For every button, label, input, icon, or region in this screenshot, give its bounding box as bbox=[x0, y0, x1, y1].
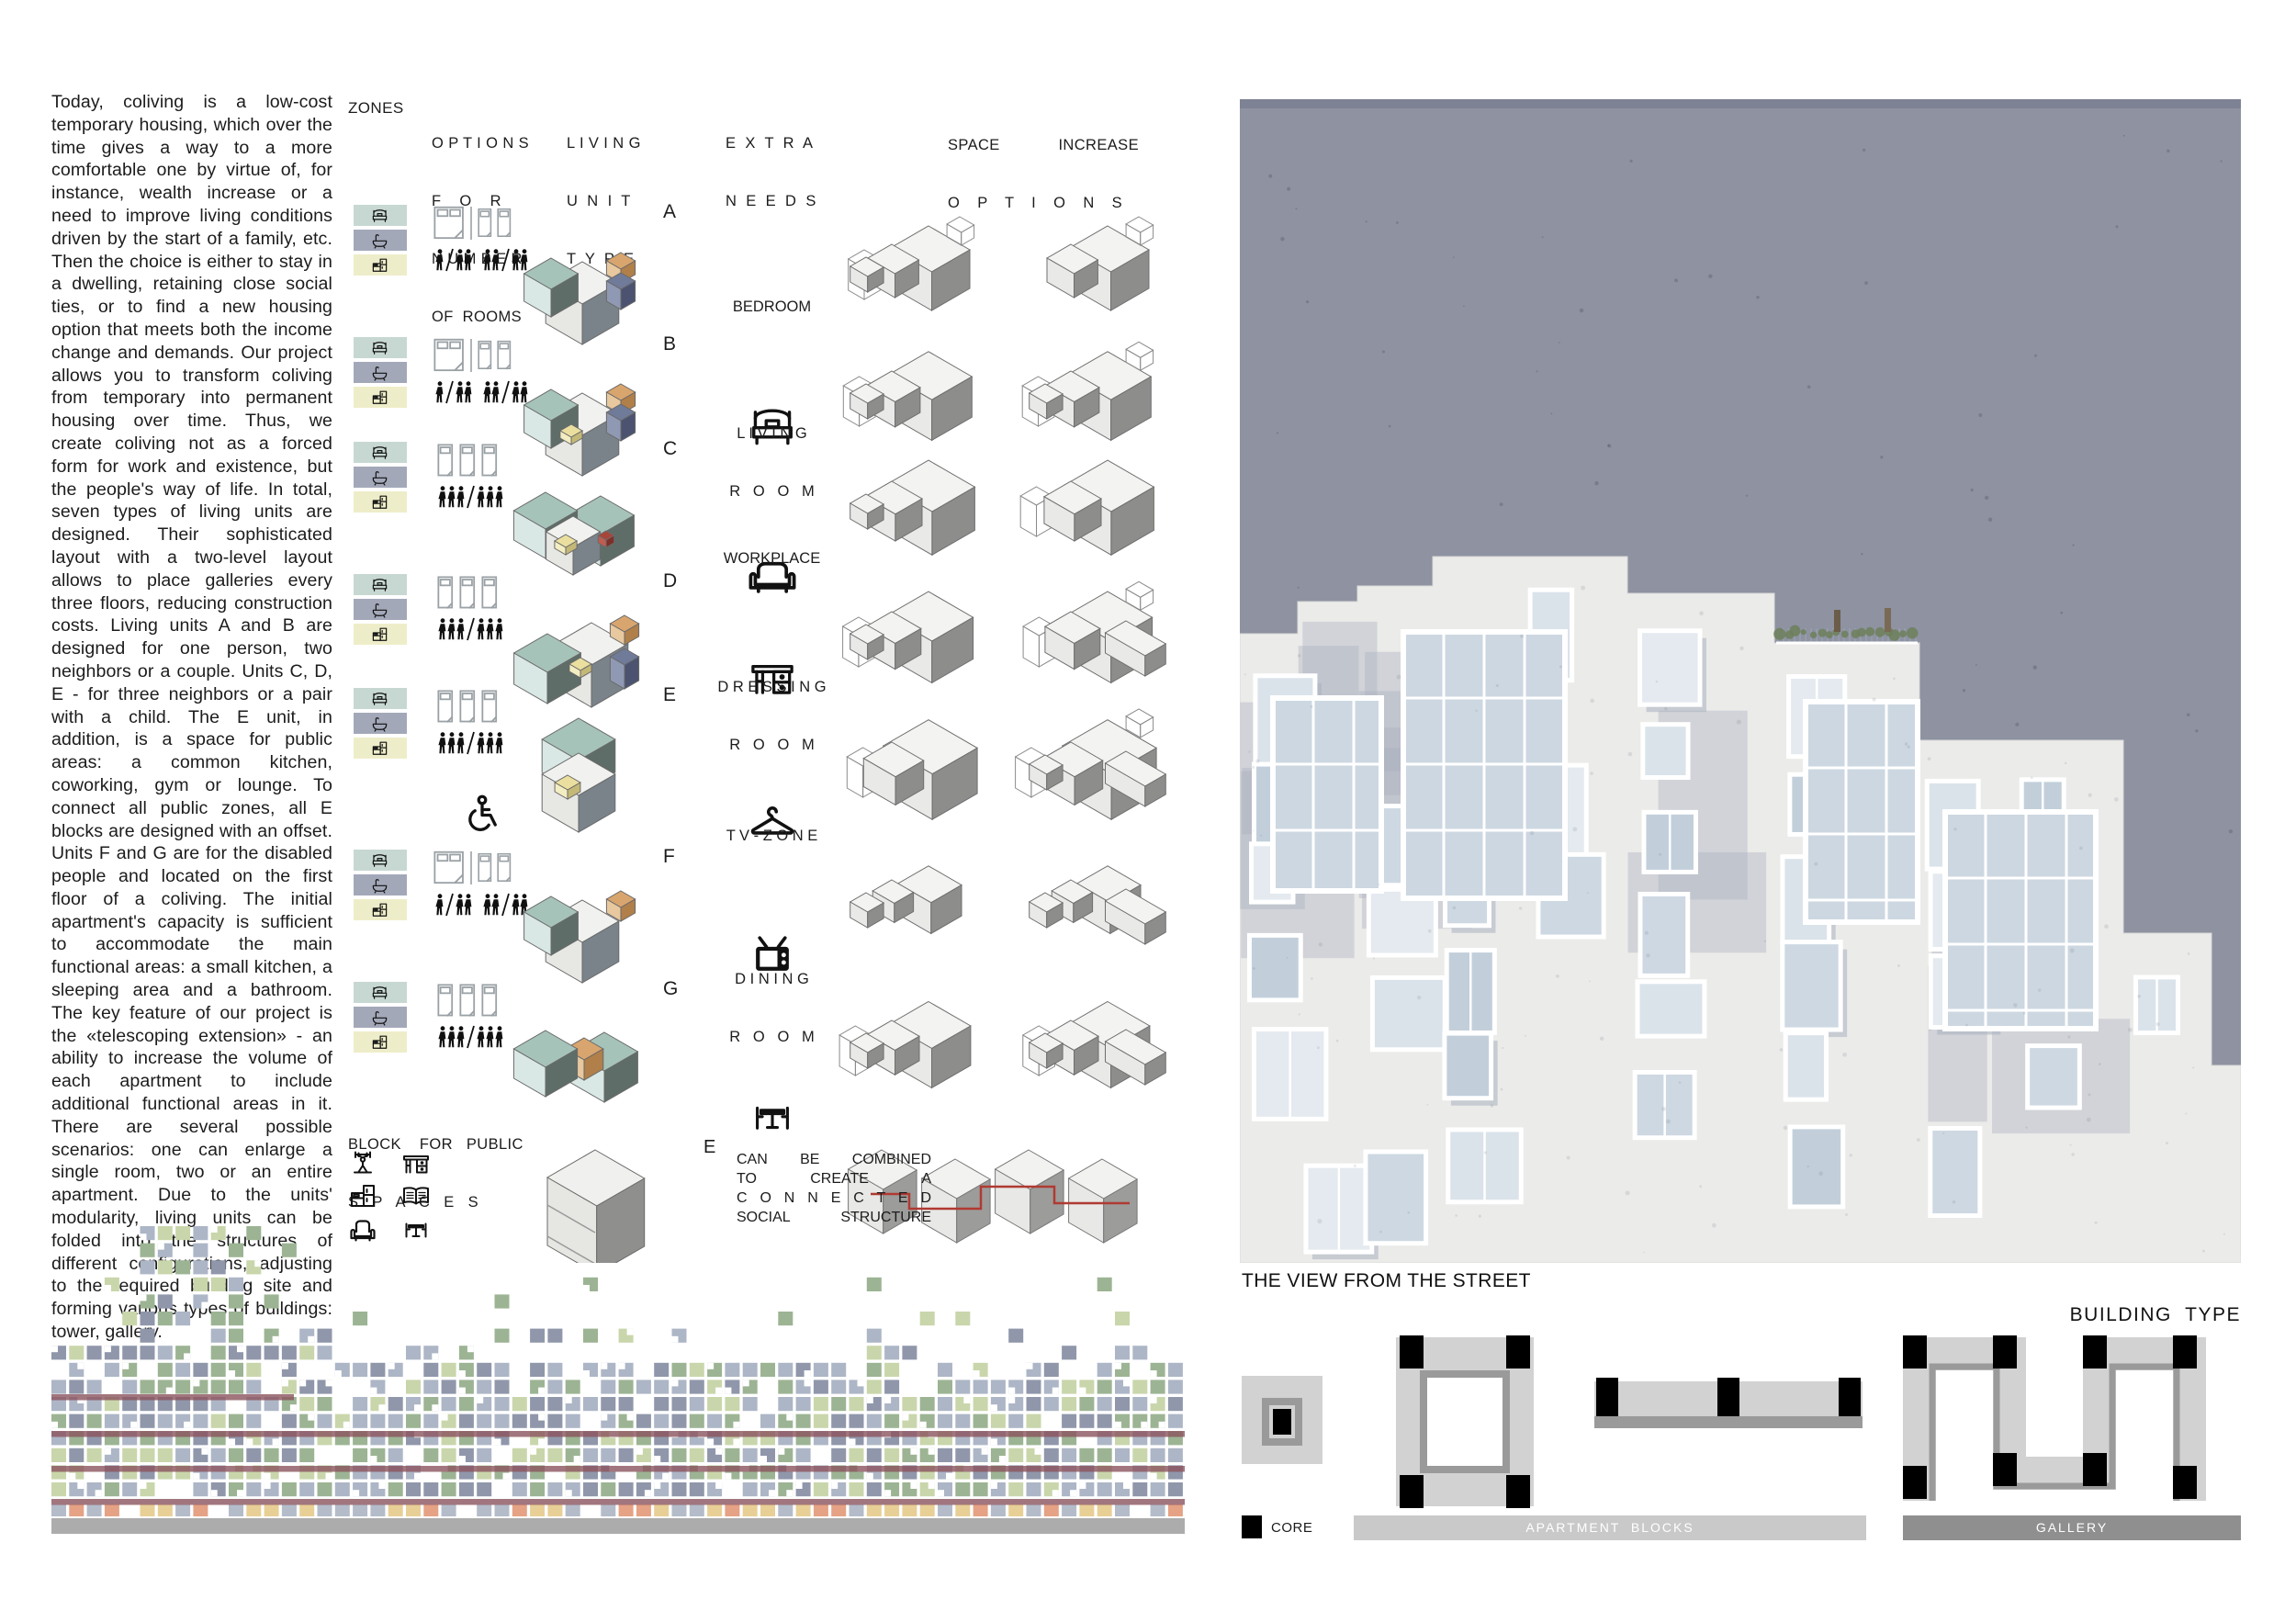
combine-note-line: TO CREATE A bbox=[737, 1169, 931, 1188]
unit-row-a: A bbox=[354, 201, 676, 344]
need-line: T V - Z O N E bbox=[726, 827, 818, 846]
combine-note-line: C O N N E C T E D bbox=[737, 1188, 931, 1208]
building-type-courtyard bbox=[1396, 1335, 1534, 1508]
extra-need-dining-room: D I N I N G R O O M bbox=[715, 931, 829, 1139]
svg-text:D: D bbox=[663, 570, 677, 591]
extra-need-label: D R E S S I N G R O O M bbox=[717, 639, 826, 794]
space-option-4 bbox=[843, 591, 974, 682]
person-silhouette bbox=[1885, 608, 1891, 632]
need-line: BEDROOM bbox=[733, 298, 811, 317]
svg-text:B: B bbox=[663, 333, 676, 355]
space-increase-clusters bbox=[839, 217, 1165, 1087]
living-unit-f-diagram bbox=[524, 891, 636, 983]
space-option-3 bbox=[850, 460, 975, 555]
mosaic-blocks bbox=[51, 1226, 1183, 1516]
combine-note-line: CAN BE COMBINED bbox=[737, 1150, 931, 1169]
need-line: L I V I N G bbox=[729, 424, 815, 444]
increase-option-6 bbox=[1030, 866, 1166, 944]
desk-icon bbox=[401, 1148, 431, 1177]
extra-needs-header-line: E X T R A bbox=[726, 134, 816, 153]
street-view-render bbox=[1240, 99, 2241, 1263]
increase-option-7 bbox=[1023, 1002, 1166, 1088]
space-option-6 bbox=[850, 866, 962, 934]
extra-need-label: BEDROOM bbox=[733, 259, 811, 394]
space-option-2 bbox=[843, 352, 972, 441]
living-unit-b-diagram bbox=[524, 384, 636, 476]
space-option-5 bbox=[847, 720, 977, 820]
living-unit-c-diagram bbox=[513, 492, 634, 575]
living-unit-d-diagram bbox=[514, 615, 639, 707]
building-type-diagrams bbox=[1231, 1323, 2259, 1534]
building-type-tower bbox=[1242, 1376, 1322, 1464]
increase-option-5 bbox=[1016, 709, 1166, 819]
need-line: D I N I N G bbox=[729, 970, 815, 989]
gym-icon bbox=[348, 1148, 377, 1177]
zones-header: ZONES bbox=[348, 98, 404, 118]
increase-option-3 bbox=[1020, 460, 1154, 555]
core-label: CORE bbox=[1271, 1520, 1312, 1536]
increase-option-4 bbox=[1023, 581, 1165, 682]
need-line: R O O M bbox=[717, 736, 826, 755]
space-header: SPACE bbox=[948, 136, 1000, 155]
unit-row-d: D bbox=[354, 570, 677, 707]
combine-note-line: SOCIAL STRUCTURE bbox=[737, 1208, 931, 1227]
svg-text:C: C bbox=[663, 438, 677, 459]
building-type-linear bbox=[1594, 1378, 1863, 1428]
unit-row-e: E bbox=[354, 684, 676, 832]
unit-row-f: F bbox=[354, 846, 675, 983]
living-unit-g-diagram bbox=[513, 1031, 637, 1102]
kitchen-icon bbox=[348, 1181, 377, 1211]
living-unit-e-diagram bbox=[542, 718, 615, 832]
wheelchair-icon bbox=[457, 792, 501, 836]
need-line: D R E S S I N G bbox=[717, 678, 826, 697]
extra-need-label: T V - Z O N E bbox=[726, 788, 818, 923]
increase-option-2 bbox=[1022, 342, 1153, 440]
poster: Today, coliving is a low-cost temporary … bbox=[0, 0, 2296, 1622]
gallery-legend: GALLERY bbox=[1903, 1515, 2241, 1540]
svg-text:E: E bbox=[663, 684, 676, 705]
living-unit-header-line: L I V I N G bbox=[567, 134, 641, 153]
svg-text:A: A bbox=[663, 201, 676, 222]
space-option-1 bbox=[849, 217, 974, 310]
mosaic-elevation bbox=[51, 1226, 1190, 1538]
space-option-7 bbox=[839, 1002, 971, 1088]
unit-row-g: G bbox=[354, 978, 678, 1102]
library-icon bbox=[401, 1181, 431, 1211]
unit-row-c: C bbox=[354, 438, 677, 575]
combine-note: CAN BE COMBINED TO CREATE A C O N N E C … bbox=[737, 1150, 931, 1227]
apartment-blocks-legend: APARTMENT BLOCKS bbox=[1354, 1515, 1866, 1540]
svg-text:G: G bbox=[663, 978, 678, 999]
need-line: WORKPLACE bbox=[724, 549, 820, 569]
building-type-gallery bbox=[1903, 1335, 2197, 1501]
person-silhouette bbox=[1834, 610, 1840, 632]
street-view-caption: THE VIEW FROM THE STREET bbox=[1242, 1270, 1531, 1292]
need-line: R O O M bbox=[729, 482, 815, 501]
intro-text: Today, coliving is a low-cost temporary … bbox=[51, 91, 332, 1344]
dining-room-icon bbox=[749, 1093, 795, 1139]
svg-text:F: F bbox=[663, 846, 675, 867]
extra-need-label: D I N I N G R O O M bbox=[729, 931, 815, 1086]
living-unit-a-diagram bbox=[524, 253, 636, 344]
core-swatch bbox=[1242, 1515, 1262, 1538]
increase-option-1 bbox=[1047, 217, 1154, 310]
base-bar bbox=[51, 1518, 1185, 1534]
extra-need-label: WORKPLACE bbox=[724, 511, 820, 646]
options-header-line: O P T I O N S bbox=[432, 134, 529, 153]
combined-unit-letter: E bbox=[703, 1137, 715, 1158]
increase-header: INCREASE bbox=[1058, 136, 1139, 155]
need-line: R O O M bbox=[729, 1028, 815, 1047]
